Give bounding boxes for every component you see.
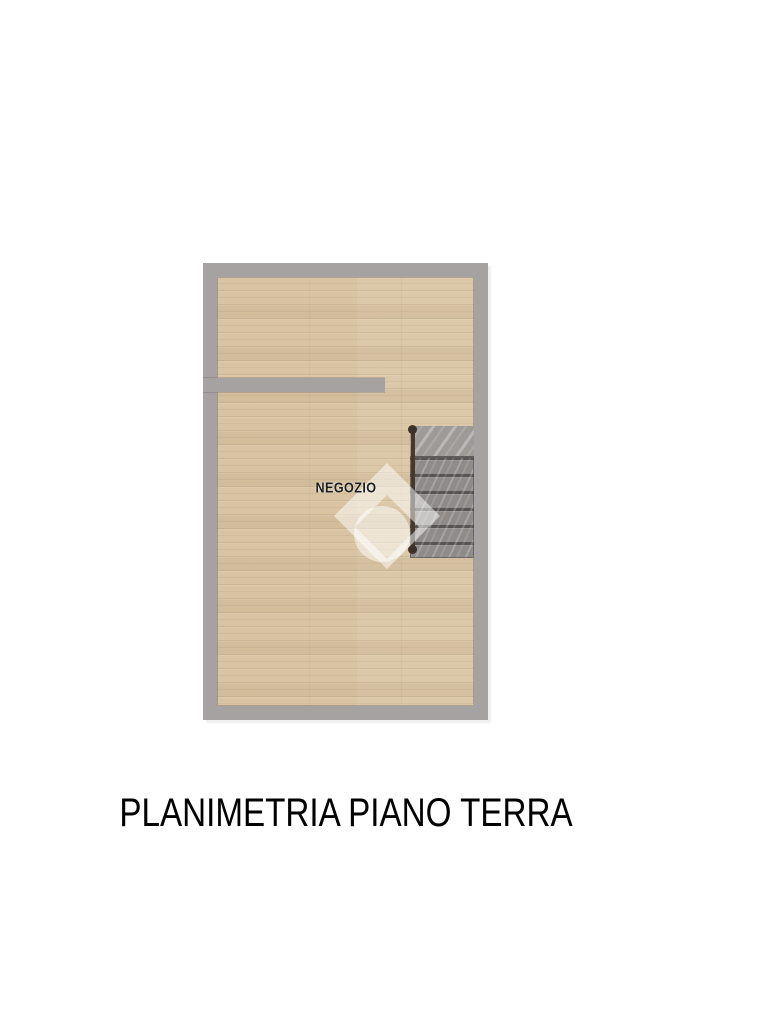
floorplan-page: NEGOZIO PLANIMETRIA PIANO TERRA: [0, 0, 768, 1024]
plan-caption: PLANIMETRIA PIANO TERRA: [119, 791, 572, 836]
stair-landing-tread: [410, 426, 474, 458]
room-label-negozio: NEGOZIO: [315, 480, 376, 497]
stair-handrail: [411, 428, 415, 551]
floorplan: NEGOZIO: [203, 263, 488, 720]
staircase: [410, 426, 474, 558]
partition-wall: [203, 378, 385, 392]
